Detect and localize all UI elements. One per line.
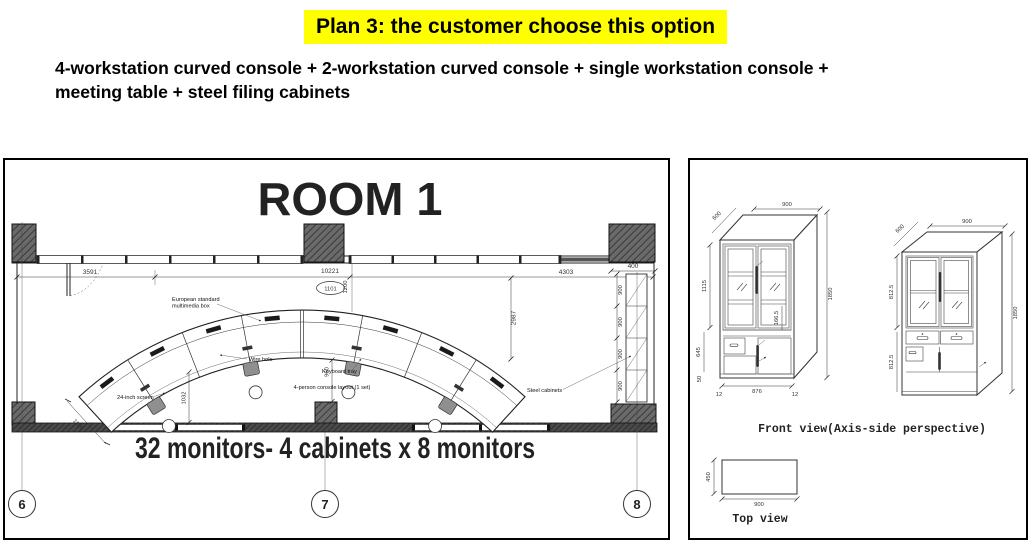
label-console-layout: 4-person console layout (1 set) — [294, 385, 371, 391]
dim-console-to-wall: 2987 — [511, 310, 518, 325]
dim-wall-right: 4303 — [559, 269, 574, 276]
top-view: 450 900 — [706, 458, 800, 509]
plan-caption: 32 monitors- 4 cabinets x 8 monitors — [135, 432, 535, 465]
dim-cabinet-width-2: 900 — [618, 317, 624, 327]
dim-cabinet-width-4: 900 — [618, 381, 624, 391]
lc-dim-width: 900 — [782, 202, 792, 208]
right-cabinet: 900 600 812.5 812.5 1850 — [889, 219, 1019, 395]
plan-description-line2: meeting table + steel filing cabinets — [55, 81, 985, 105]
tv-dim-width: 900 — [754, 502, 764, 508]
dim-wall-total: 10221 — [321, 268, 339, 275]
rc-dim-total: 1850 — [1013, 307, 1019, 320]
cabinet-views-drawing: 900 600 1115 645 50 1850 166.5 876 12 12 — [690, 160, 1026, 538]
curved-console — [79, 310, 525, 432]
front-view-label: Front view(Axis-side perspective) — [758, 423, 986, 436]
page-header: Plan 3: the customer choose this option — [0, 10, 1031, 44]
grid-bubble-6: 6 — [18, 497, 25, 512]
lc-dim-depth: 600 — [712, 211, 723, 222]
rc-dim-lower: 812.5 — [889, 355, 895, 370]
label-steel-cabinets: Steel cabinets — [527, 388, 562, 394]
lc-dim-upper: 1115 — [702, 280, 708, 292]
tv-dim-depth: 450 — [706, 472, 712, 482]
lc-dim-base: 50 — [697, 376, 703, 382]
dim-cabinet-depth: 400 — [628, 263, 639, 270]
dim-cabinet-width-3: 900 — [618, 349, 624, 359]
rc-dim-upper: 812.5 — [889, 285, 895, 300]
label-screen: 24-inch screen — [117, 395, 154, 401]
top-view-label: Top view — [732, 513, 787, 526]
rc-dim-width: 900 — [962, 219, 972, 225]
label-keyboard-tray: Keyboard tray — [322, 369, 357, 375]
dim-wall-left: 3591 — [83, 269, 98, 276]
grid-bubble-7: 7 — [321, 497, 328, 512]
door — [67, 263, 103, 296]
lc-dim-detail: 166.5 — [774, 311, 780, 326]
rc-dim-depth: 600 — [895, 224, 906, 235]
room-plan-panel: ROOM 1 — [3, 158, 670, 540]
dim-console-tag: 1101 — [324, 286, 336, 292]
cabinet-views-panel: 900 600 1115 645 50 1850 166.5 876 12 12 — [688, 158, 1028, 540]
lc-dim-lower: 645 — [696, 347, 702, 357]
room-plan-drawing: ROOM 1 — [5, 160, 668, 538]
plan-description-line1: 4-workstation curved console + 2-worksta… — [55, 57, 985, 81]
lc-dim-total: 1850 — [828, 288, 834, 301]
dim-cabinet-depth-group: 400 — [609, 263, 658, 274]
lc-dim-inner-width: 876 — [752, 389, 762, 395]
dimension-chain: 3591 10221 4303 1101 1200 — [15, 264, 656, 312]
plan-description: 4-workstation curved console + 2-worksta… — [55, 57, 985, 105]
steel-cabinet-strip: 900 900 900 900 — [615, 272, 648, 405]
grid-bubble-8: 8 — [633, 497, 640, 512]
room-title: ROOM 1 — [258, 173, 443, 225]
dim-console-to-wall-group: 2987 — [509, 276, 518, 362]
dim-wall-gap: 1200 — [343, 281, 349, 294]
lc-dim-edge-left: 12 — [716, 392, 722, 398]
label-multimedia-line2: multimedia box — [172, 304, 210, 310]
dim-console-clearance: 1032 — [182, 392, 188, 405]
label-wire-hole: Wire hole — [249, 357, 273, 363]
dim-cabinet-width-1: 900 — [618, 285, 624, 295]
left-cabinet: 900 600 1115 645 50 1850 166.5 876 12 12 — [696, 202, 834, 398]
label-multimedia-line1: European standard — [172, 297, 220, 303]
page-title: Plan 3: the customer choose this option — [304, 10, 727, 44]
lc-dim-edge-right: 12 — [792, 392, 798, 398]
